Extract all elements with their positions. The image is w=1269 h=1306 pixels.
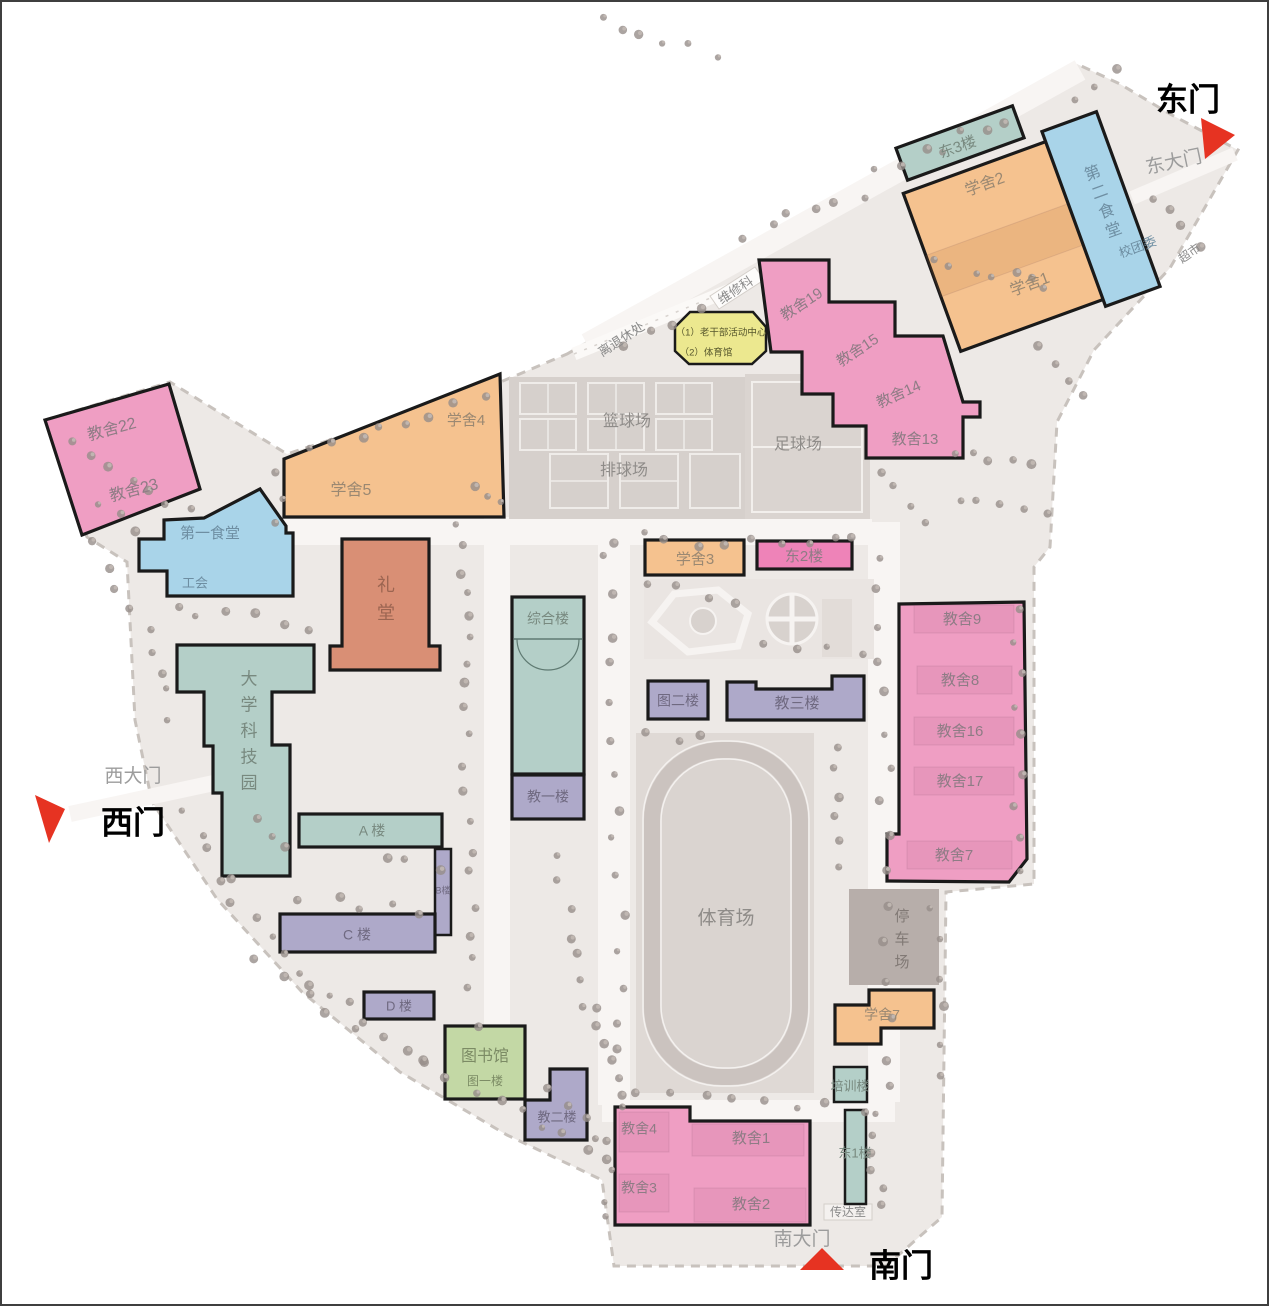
tree-icon	[473, 1090, 480, 1097]
tree-icon	[609, 659, 613, 663]
tree-icon	[893, 483, 896, 486]
map-label-11: 教舍4	[621, 1121, 657, 1137]
map-label-12: 教舍1	[732, 1130, 770, 1147]
tree-icon	[881, 978, 889, 986]
tree-icon	[72, 438, 76, 442]
tree-icon	[616, 1045, 620, 1049]
tree-icon	[1069, 378, 1072, 381]
tree-icon	[474, 1022, 483, 1031]
tree-icon	[987, 127, 991, 131]
tree-icon	[561, 1129, 565, 1133]
tree-icon	[363, 434, 367, 438]
tree-icon	[663, 536, 667, 540]
tree-icon	[568, 1102, 572, 1106]
tree-icon	[580, 977, 583, 980]
tree-icon	[558, 1128, 567, 1137]
tree-icon	[644, 529, 647, 532]
tree-icon	[206, 844, 210, 848]
tree-icon	[359, 906, 362, 909]
tree-icon	[134, 528, 138, 532]
building-xueshe-4-5	[284, 374, 504, 517]
tree-icon	[402, 420, 410, 428]
tree-icon	[631, 1088, 640, 1097]
tree-icon	[859, 651, 866, 658]
tree-icon	[444, 1074, 448, 1078]
tree-icon	[816, 205, 820, 209]
tree-icon	[1079, 391, 1088, 400]
map-label-40: 教三楼	[774, 695, 819, 712]
tree-icon	[121, 511, 125, 515]
tree-icon	[1003, 119, 1007, 123]
tree-icon	[834, 813, 838, 817]
tree-icon	[675, 582, 679, 586]
map-label-22: 第一食堂	[180, 524, 240, 542]
tree-icon	[751, 536, 755, 540]
tree-icon	[355, 906, 362, 913]
map-label-45: 教二楼	[537, 1109, 576, 1124]
map-label-9: 教舍17	[937, 773, 984, 790]
tree-icon	[948, 263, 951, 266]
tree-icon	[547, 1085, 551, 1089]
tree-icon	[887, 903, 891, 907]
tree-icon	[939, 976, 942, 979]
west-gate-label: 西门	[101, 804, 165, 840]
tree-icon	[225, 608, 229, 612]
tree-icon	[774, 221, 778, 225]
tree-icon	[501, 1097, 505, 1101]
tree-icon	[299, 971, 302, 974]
tree-icon	[619, 1075, 623, 1079]
map-label-21: 学舍7	[864, 1007, 900, 1023]
tree-icon	[1047, 510, 1051, 514]
tree-icon	[641, 728, 650, 737]
map-label-57: 车	[894, 931, 909, 948]
tree-icon	[889, 1083, 893, 1087]
tree-icon	[352, 1025, 360, 1033]
map-label-37: 东1楼	[838, 1145, 871, 1160]
map-label-5: 教舍13	[892, 431, 939, 448]
tree-icon	[603, 14, 606, 17]
tree-icon	[927, 145, 931, 149]
map-label-38: 培训楼	[830, 1078, 869, 1093]
tree-icon	[701, 305, 705, 309]
tree-icon	[688, 41, 691, 44]
tree-icon	[283, 496, 286, 499]
tree-icon	[759, 640, 767, 648]
tree-icon	[175, 603, 183, 611]
tree-icon	[330, 993, 333, 996]
tree-icon	[1022, 670, 1026, 674]
tree-icon	[553, 876, 560, 883]
tree-icon	[861, 1108, 869, 1116]
tree-icon	[797, 1105, 800, 1108]
tree-icon	[253, 913, 262, 922]
tree-icon	[647, 581, 650, 584]
south-gate-label: 南门	[869, 1247, 933, 1283]
tree-icon	[468, 612, 472, 616]
tree-icon	[613, 1020, 621, 1028]
map-label-46: 图书馆	[461, 1047, 509, 1065]
map-shape-2	[484, 517, 510, 1037]
tree-icon	[275, 520, 278, 523]
tree-icon	[604, 1199, 607, 1202]
tree-icon	[1116, 65, 1120, 69]
tree-icon	[595, 1022, 599, 1026]
tree-icon	[470, 818, 473, 821]
tree-icon	[731, 1095, 735, 1099]
tree-icon	[1180, 222, 1184, 226]
tree-icon	[309, 445, 312, 448]
tree-icon	[1016, 834, 1024, 842]
tree-icon	[830, 812, 838, 820]
tree-icon	[418, 911, 422, 915]
tree-icon	[866, 1166, 874, 1174]
tree-icon	[281, 950, 289, 958]
tree-icon	[324, 1009, 328, 1013]
map-label-31: 大	[241, 669, 258, 688]
tree-icon	[886, 1057, 890, 1061]
tree-icon	[472, 850, 476, 854]
tree-icon	[869, 1132, 877, 1140]
tree-icon	[346, 998, 354, 1006]
tree-icon	[738, 235, 746, 243]
tree-icon	[463, 703, 467, 707]
tree-icon	[865, 1109, 869, 1113]
tree-icon	[724, 541, 728, 545]
tree-icon	[1149, 195, 1156, 202]
tree-icon	[167, 717, 170, 720]
tree-icon	[179, 604, 183, 608]
west-gate-arrow-icon	[35, 795, 65, 843]
tree-icon	[1020, 868, 1023, 871]
tree-icon	[793, 645, 802, 654]
tree-icon	[577, 950, 581, 954]
tree-icon	[161, 501, 168, 508]
map-label-58: 场	[894, 954, 909, 971]
tree-icon	[879, 1184, 887, 1192]
tree-icon	[622, 27, 626, 31]
tree-icon	[838, 794, 842, 798]
map-label-20: 学舍3	[676, 551, 714, 568]
tree-icon	[621, 1092, 625, 1096]
tree-icon	[943, 1002, 947, 1006]
tree-icon	[162, 670, 166, 674]
tree-icon	[764, 1097, 768, 1101]
tree-icon	[615, 872, 618, 875]
tree-icon	[976, 497, 979, 500]
tree-icon	[254, 610, 258, 614]
tree-icon	[874, 166, 877, 169]
map-label-41: 教一楼	[527, 789, 569, 805]
tree-icon	[114, 586, 118, 590]
map-label-48: 礼	[377, 575, 395, 595]
tree-icon	[877, 468, 885, 476]
tree-icon	[109, 565, 113, 569]
tree-icon	[606, 737, 614, 745]
tree-icon	[937, 1072, 945, 1080]
tree-icon	[1013, 640, 1016, 643]
tree-icon	[881, 1201, 885, 1205]
tree-icon	[612, 1167, 615, 1170]
tree-icon	[596, 1005, 600, 1009]
map-label-52: 篮球场	[603, 412, 651, 430]
tree-icon	[256, 914, 260, 918]
tree-icon	[676, 737, 684, 745]
tree-icon	[91, 452, 95, 456]
tree-icon	[1065, 377, 1073, 385]
tree-icon	[1094, 84, 1097, 87]
tree-icon	[1009, 802, 1017, 810]
tree-icon	[735, 600, 739, 604]
tree-icon	[275, 469, 279, 473]
map-label-23: 工会	[182, 575, 208, 590]
tree-icon	[1014, 705, 1017, 708]
tree-icon	[670, 1090, 674, 1094]
tree-icon	[882, 938, 886, 942]
tree-icon	[392, 901, 395, 904]
tree-icon	[930, 905, 933, 908]
tree-icon	[885, 979, 889, 983]
map-label-32: 学	[241, 695, 258, 714]
tree-icon	[151, 627, 154, 630]
map-label-54: 足球场	[774, 435, 822, 453]
tree-icon	[487, 493, 490, 496]
tree-icon	[188, 505, 195, 512]
tree-icon	[1153, 196, 1156, 199]
tree-icon	[404, 856, 407, 859]
tree-icon	[523, 1106, 526, 1109]
tree-icon	[635, 1089, 639, 1093]
tree-icon	[375, 423, 382, 430]
map-label-30: 综合楼	[527, 611, 569, 627]
map-label-47: 图一楼	[467, 1073, 503, 1088]
tree-icon	[611, 835, 614, 838]
tree-icon	[612, 635, 616, 639]
tree-icon	[886, 867, 890, 871]
tree-icon	[482, 392, 490, 400]
tree-icon	[464, 679, 468, 683]
tree-icon	[486, 393, 490, 397]
tree-icon	[310, 991, 314, 995]
map-label-55: 体育场	[697, 907, 754, 929]
tree-icon	[763, 641, 767, 645]
tree-icon	[638, 31, 642, 35]
tree-icon	[961, 498, 964, 501]
map-label-36: A 楼	[359, 823, 385, 839]
tree-icon	[863, 651, 866, 654]
tree-icon	[293, 896, 301, 904]
tree-icon	[467, 590, 470, 593]
tree-icon	[272, 834, 275, 837]
tree-icon	[203, 833, 206, 836]
tree-icon	[308, 627, 312, 631]
tree-icon	[925, 520, 928, 523]
tree-icon	[477, 1090, 480, 1093]
tree-icon	[999, 501, 1003, 505]
tree-icon	[1016, 269, 1020, 273]
tree-icon	[619, 26, 628, 35]
tree-icon	[472, 954, 475, 957]
tree-icon	[645, 729, 649, 733]
tree-icon	[1022, 771, 1026, 775]
tree-icon	[615, 1074, 623, 1082]
tree-icon	[462, 542, 466, 546]
tree-icon	[666, 1089, 674, 1097]
tree-icon	[465, 867, 473, 875]
tree-icon	[839, 864, 842, 867]
tree-icon	[873, 658, 881, 666]
tree-icon	[871, 584, 880, 593]
west-gate-sub-label: 西大门	[104, 765, 161, 787]
tree-icon	[1169, 206, 1173, 210]
tree-icon	[879, 797, 883, 801]
tree-icon	[378, 424, 381, 427]
map-label-8: 教舍16	[937, 723, 984, 740]
tree-icon	[571, 936, 575, 940]
tree-icon	[440, 866, 444, 870]
tree-icon	[872, 1132, 875, 1135]
tree-icon	[405, 421, 409, 425]
tree-icon	[699, 732, 703, 736]
tree-icon	[401, 855, 408, 862]
tree-icon	[379, 1033, 388, 1042]
map-label-56: 停	[894, 908, 909, 925]
tree-icon	[470, 933, 474, 937]
tree-icon	[472, 904, 480, 912]
tree-icon	[945, 263, 952, 270]
tree-icon	[662, 41, 665, 44]
tree-icon	[672, 581, 680, 589]
tree-icon	[865, 195, 868, 198]
tree-icon	[475, 905, 479, 909]
tree-icon	[875, 1111, 878, 1114]
tree-icon	[92, 538, 96, 542]
tree-icon	[623, 985, 626, 988]
tree-icon	[117, 510, 125, 518]
tree-icon	[456, 522, 459, 525]
tree-icon	[68, 437, 76, 445]
map-label-34: 技	[241, 747, 258, 766]
tree-icon	[460, 571, 464, 575]
tree-icon	[782, 541, 785, 544]
tree-icon	[614, 772, 617, 775]
tree-icon	[698, 543, 702, 547]
tree-icon	[609, 699, 612, 702]
tree-icon	[582, 1004, 585, 1007]
tree-icon	[886, 1082, 894, 1090]
tree-icon	[875, 585, 879, 589]
tree-icon	[606, 1138, 610, 1142]
tree-icon	[605, 1213, 608, 1216]
tree-icon	[462, 788, 466, 792]
tree-icon	[1009, 456, 1016, 463]
tree-icon	[889, 832, 893, 836]
tree-icon	[612, 590, 616, 594]
tree-icon	[611, 1056, 615, 1060]
tree-icon	[327, 438, 336, 447]
tree-icon	[359, 1018, 367, 1026]
tree-icon	[478, 1023, 482, 1027]
tree-icon	[877, 659, 881, 663]
tree-icon	[987, 457, 991, 461]
tree-icon	[742, 236, 746, 240]
map-label-44: D 楼	[386, 998, 412, 1013]
tree-icon	[1020, 834, 1024, 838]
campus-map-frame: 教舍22教舍23教舍19教舍15教舍14教舍13教舍9教舍8教舍16教舍17教舍…	[0, 0, 1269, 1306]
map-label-35: 园	[241, 773, 258, 792]
tree-icon	[422, 1057, 426, 1061]
map-label-19: 学舍5	[331, 481, 372, 499]
tree-icon	[877, 1201, 885, 1209]
tree-icon	[847, 533, 856, 542]
tree-icon	[158, 669, 167, 678]
tree-icon	[556, 877, 559, 880]
tree-icon	[806, 540, 813, 547]
tree-icon	[830, 764, 837, 771]
tree-icon	[308, 982, 312, 986]
tree-icon	[452, 399, 456, 403]
tree-icon	[889, 482, 896, 489]
tree-icon	[579, 1003, 587, 1011]
east-gate-label: 东门	[1156, 81, 1220, 117]
tree-icon	[605, 658, 614, 667]
map-label-14: 教舍2	[732, 1196, 770, 1213]
tree-icon	[110, 585, 118, 593]
tree-icon	[273, 934, 276, 937]
south-gate-sub-label: 南大门	[773, 1228, 830, 1250]
tree-icon	[468, 867, 472, 871]
tree-icon	[428, 414, 432, 418]
tree-icon	[1018, 669, 1026, 677]
tree-icon	[271, 519, 279, 527]
map-shape-34	[690, 608, 716, 634]
tree-icon	[1019, 606, 1023, 610]
tree-icon	[586, 1115, 590, 1119]
tree-icon	[833, 765, 836, 768]
map-label-62: 传达室	[830, 1204, 866, 1219]
map-label-18: 学舍4	[447, 412, 485, 429]
map-label-42: B楼	[435, 884, 450, 895]
tree-icon	[1013, 457, 1016, 460]
tree-icon	[671, 322, 675, 326]
campus-map: 教舍22教舍23教舍19教舍15教舍14教舍13教舍9教舍8教舍16教舍17教舍…	[2, 2, 1267, 1304]
tree-icon	[705, 594, 713, 602]
tree-icon	[1083, 392, 1087, 396]
map-label-49: 堂	[377, 603, 395, 623]
tree-icon	[230, 875, 234, 879]
tree-icon	[464, 984, 472, 992]
tree-icon	[797, 646, 801, 650]
tree-icon	[166, 686, 169, 689]
tree-icon	[571, 906, 575, 910]
tree-icon	[462, 763, 466, 767]
tree-icon	[1043, 510, 1051, 518]
tree-icon	[706, 1092, 710, 1096]
tree-icon	[349, 999, 353, 1003]
tree-icon	[940, 1073, 943, 1076]
tree-icon	[785, 210, 789, 214]
map-label-39: 图二楼	[657, 693, 699, 709]
tree-icon	[603, 1040, 607, 1044]
tree-icon	[837, 744, 841, 748]
tree-icon	[305, 626, 313, 634]
tree-icon	[834, 744, 842, 752]
tree-icon	[973, 450, 976, 453]
tree-icon	[996, 500, 1004, 508]
tree-icon	[355, 1026, 358, 1029]
tree-icon	[622, 1104, 625, 1107]
tree-icon	[883, 688, 887, 692]
